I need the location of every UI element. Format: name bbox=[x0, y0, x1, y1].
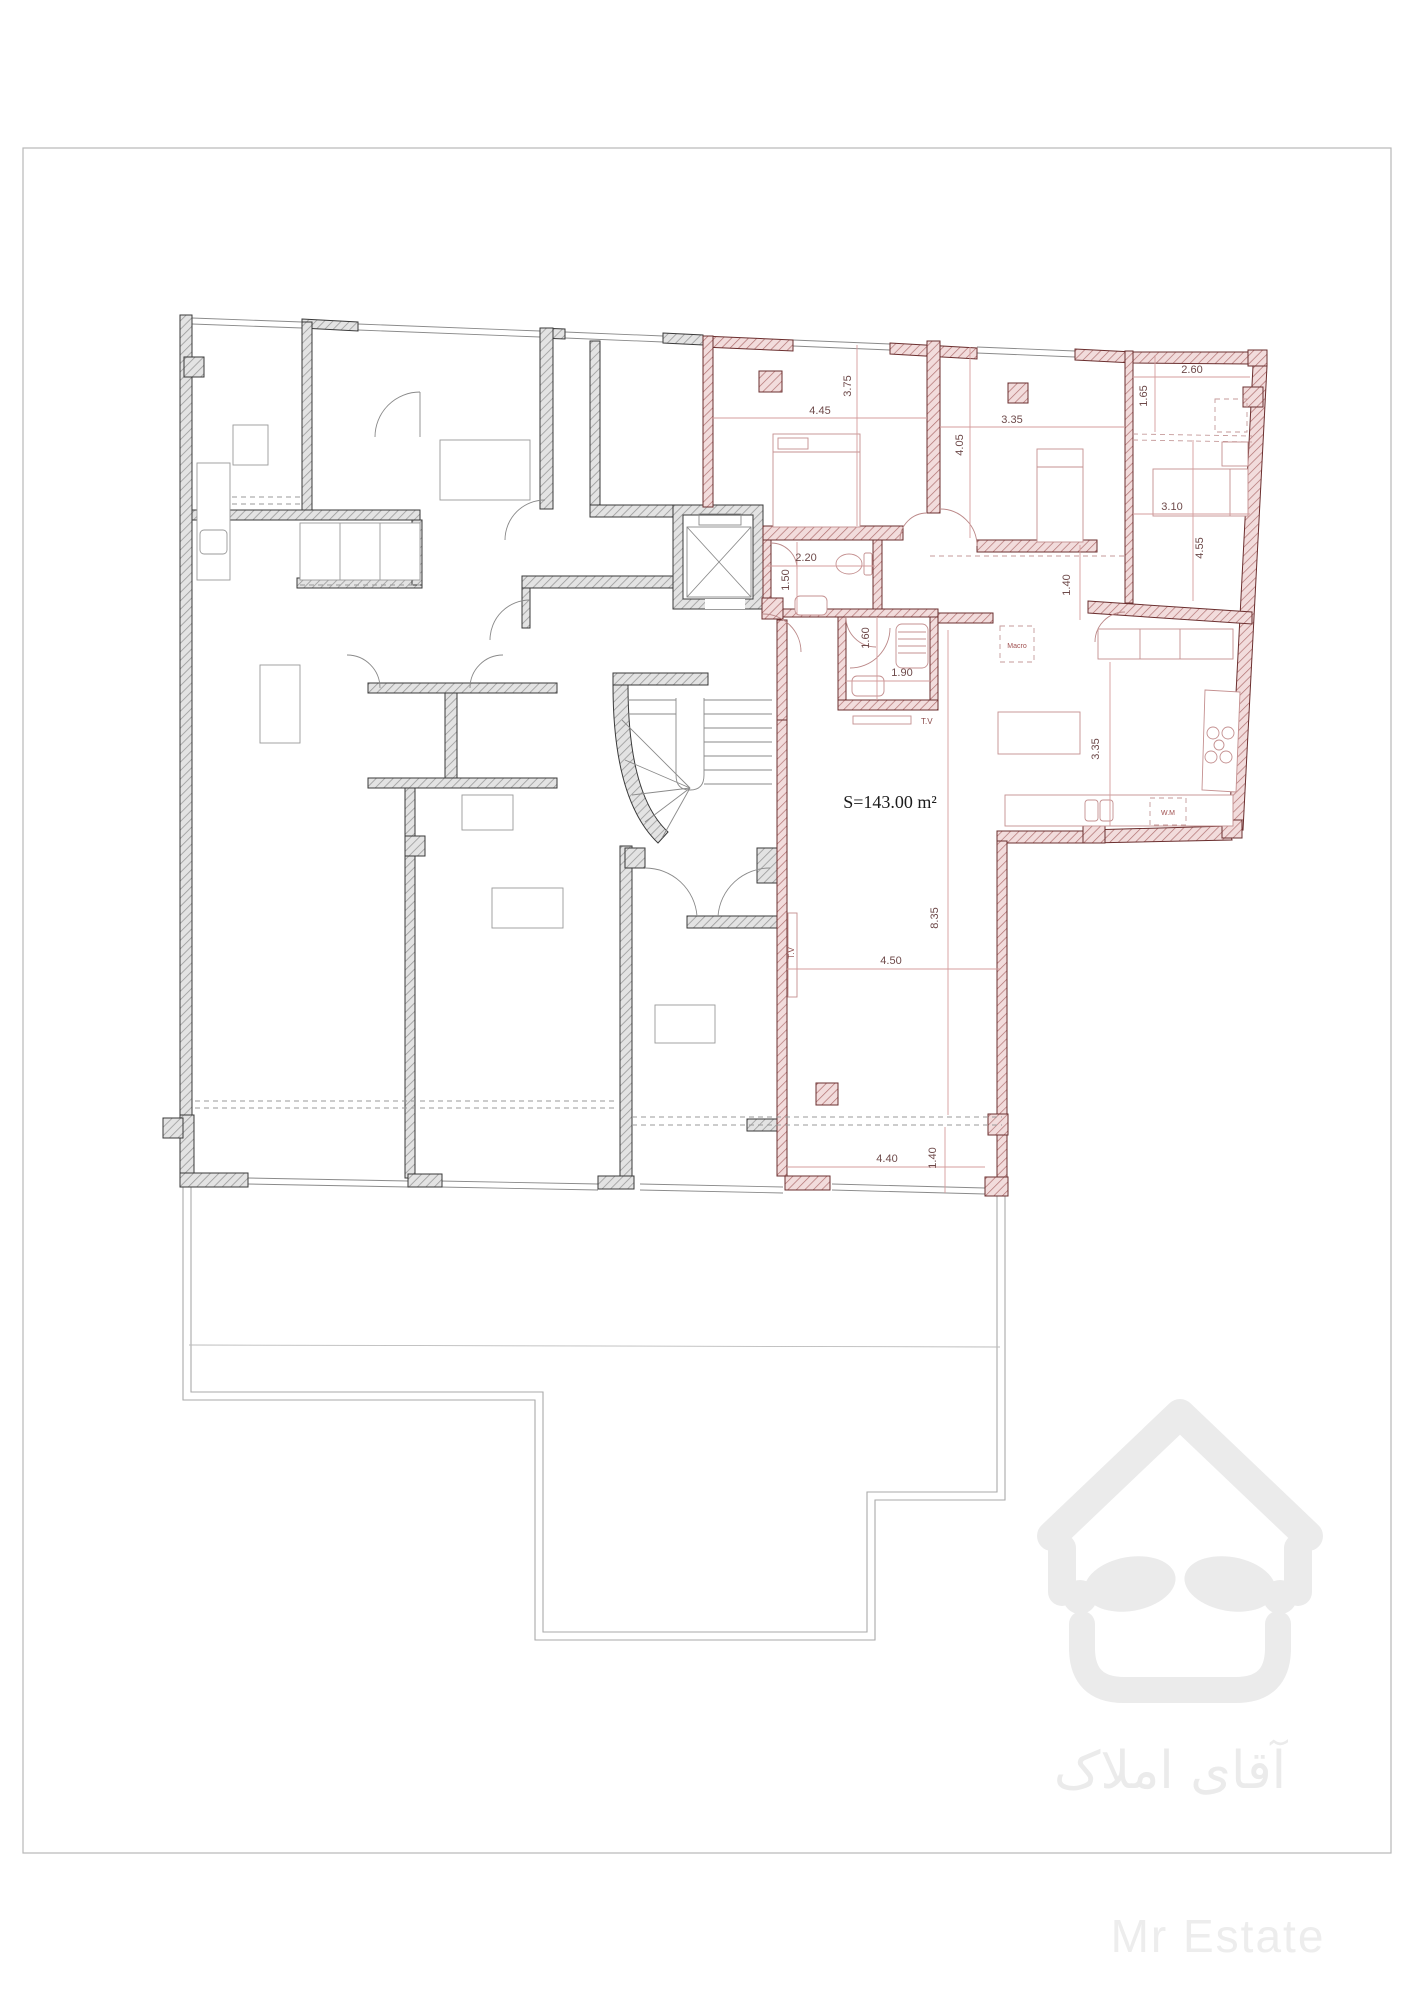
closet bbox=[300, 523, 420, 580]
area-label: S=143.00 m² bbox=[843, 792, 937, 812]
bathtub-icon bbox=[896, 624, 928, 668]
dimension-label: 2.20 bbox=[795, 552, 816, 564]
tv-label: T.V bbox=[921, 717, 933, 726]
site-setback-line bbox=[189, 1345, 1000, 1347]
stair bbox=[613, 673, 772, 843]
dimension-label: 2.60 bbox=[1181, 364, 1202, 376]
watermark-logo: آقای املاک Mr Estate bbox=[1052, 1414, 1325, 1962]
site-boundary bbox=[183, 1186, 1005, 1640]
dimension-label: 1.90 bbox=[891, 667, 912, 679]
dining-table bbox=[998, 712, 1080, 754]
table bbox=[492, 888, 563, 928]
dimension-label: 4.45 bbox=[809, 405, 830, 417]
washing-machine-label: W.M bbox=[1161, 810, 1175, 817]
dimension-label: 1.65 bbox=[1138, 385, 1150, 406]
dimension-label: 1.40 bbox=[1061, 574, 1073, 595]
house-icon bbox=[1052, 1414, 1308, 1536]
elevator bbox=[673, 505, 763, 609]
macro-label: Macro bbox=[1007, 643, 1027, 650]
counter bbox=[197, 463, 230, 580]
sink-icon bbox=[795, 596, 827, 615]
floor-plan-page: آقای املاک Mr Estate bbox=[0, 0, 1414, 2000]
dimension-label: 1.60 bbox=[860, 627, 872, 648]
dimension-label: 4.50 bbox=[880, 955, 901, 967]
watermark-text-farsi: آقای املاک bbox=[1054, 1738, 1289, 1801]
column bbox=[759, 371, 782, 392]
dimension-label: 4.40 bbox=[876, 1153, 897, 1165]
bed bbox=[773, 434, 860, 527]
floor-plan-drawing: آقای املاک Mr Estate bbox=[0, 0, 1414, 2000]
dimension-label: 4.05 bbox=[954, 434, 966, 455]
kitchen-sink bbox=[1085, 800, 1098, 821]
dimension-label: 4.55 bbox=[1194, 537, 1206, 558]
dimension-label: 1.40 bbox=[927, 1147, 939, 1168]
sink-icon bbox=[852, 676, 884, 696]
bed bbox=[1037, 449, 1083, 542]
bed bbox=[440, 440, 530, 500]
closet bbox=[1222, 442, 1248, 466]
watermark-text-latin: Mr Estate bbox=[1111, 1910, 1326, 1962]
tv-label: T.V bbox=[787, 947, 796, 959]
left-outer-wall bbox=[180, 315, 192, 1183]
balcony-furniture-dashed bbox=[1215, 399, 1247, 432]
dimension-label: 3.35 bbox=[1001, 414, 1022, 426]
dimension-label: 8.35 bbox=[929, 907, 941, 928]
stair-handrail bbox=[676, 698, 704, 790]
tv-cabinet bbox=[853, 716, 911, 724]
dimension-label: 1.50 bbox=[780, 569, 792, 590]
mustache-icon bbox=[1063, 1549, 1297, 1618]
dimension-label: 3.10 bbox=[1161, 501, 1182, 513]
toilet-icon bbox=[836, 553, 872, 575]
dimension-label: 3.75 bbox=[842, 375, 854, 396]
dimension-label: 3.35 bbox=[1090, 738, 1102, 759]
